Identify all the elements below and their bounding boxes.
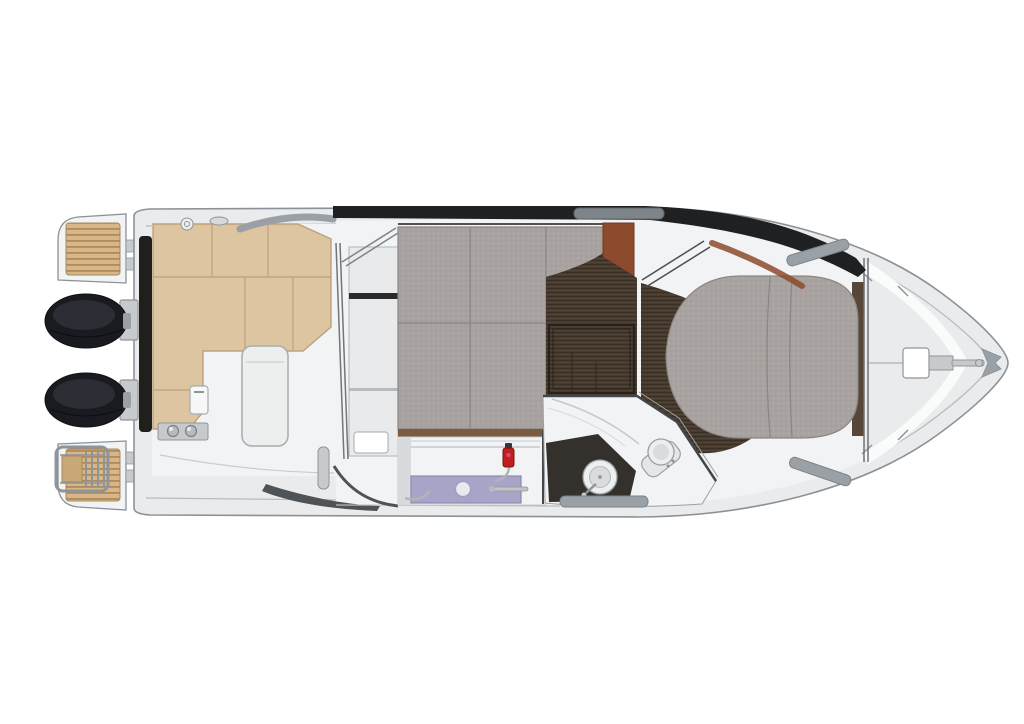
fuel-filler-cap: [168, 426, 179, 437]
port-platform-teak: [66, 223, 120, 275]
port-swim-platform: [58, 214, 135, 283]
galley: [398, 430, 546, 505]
engine-cowl-shine: [53, 379, 115, 409]
door-step: [354, 432, 388, 453]
gas-strut: [318, 447, 329, 489]
cap-shine: [187, 427, 191, 431]
filler-plate: [158, 423, 208, 440]
engine-mount-tab: [123, 313, 131, 329]
door-dark-band: [349, 293, 398, 299]
anchor-pin: [976, 360, 983, 367]
stern-cleat: [210, 217, 228, 225]
engine-mount-tab: [123, 392, 131, 408]
galley-cabinet-side: [398, 437, 411, 505]
berth-trim: [398, 429, 546, 437]
bow-cabin-berth: [666, 276, 858, 438]
door-groove: [349, 388, 398, 391]
toilet-bowl-inner: [653, 444, 669, 460]
sink-drain: [598, 475, 602, 479]
boat-deck-plan: [0, 0, 1024, 724]
roof-grab-rail: [574, 208, 664, 219]
cap-shine: [169, 427, 173, 431]
toilet-hinge: [667, 465, 670, 468]
toilet-hinge: [672, 460, 675, 463]
galley-faucet: [492, 487, 528, 491]
fire-extinguisher: [503, 448, 514, 467]
galley-sink: [456, 482, 471, 497]
starboard-outboard-engine: [45, 373, 131, 427]
engine-cowl-shine: [53, 300, 115, 330]
door-panel: [349, 247, 398, 456]
deck-plan-canvas: [0, 0, 1024, 724]
anchor-locker: [903, 348, 929, 378]
faucet-base: [489, 486, 495, 492]
transom: [139, 236, 152, 432]
fuel-filler-cap: [186, 426, 197, 437]
ladder-step: [62, 456, 82, 482]
deck-fitting: [181, 218, 193, 230]
extinguisher-label: [507, 453, 511, 457]
starboard-swim-platform: [56, 441, 135, 510]
side-grab-rail: [560, 496, 648, 507]
bow-roller: [929, 356, 953, 370]
cockpit-table: [242, 346, 288, 446]
deck-hatch: [190, 386, 208, 414]
port-outboard-engine: [45, 294, 131, 348]
